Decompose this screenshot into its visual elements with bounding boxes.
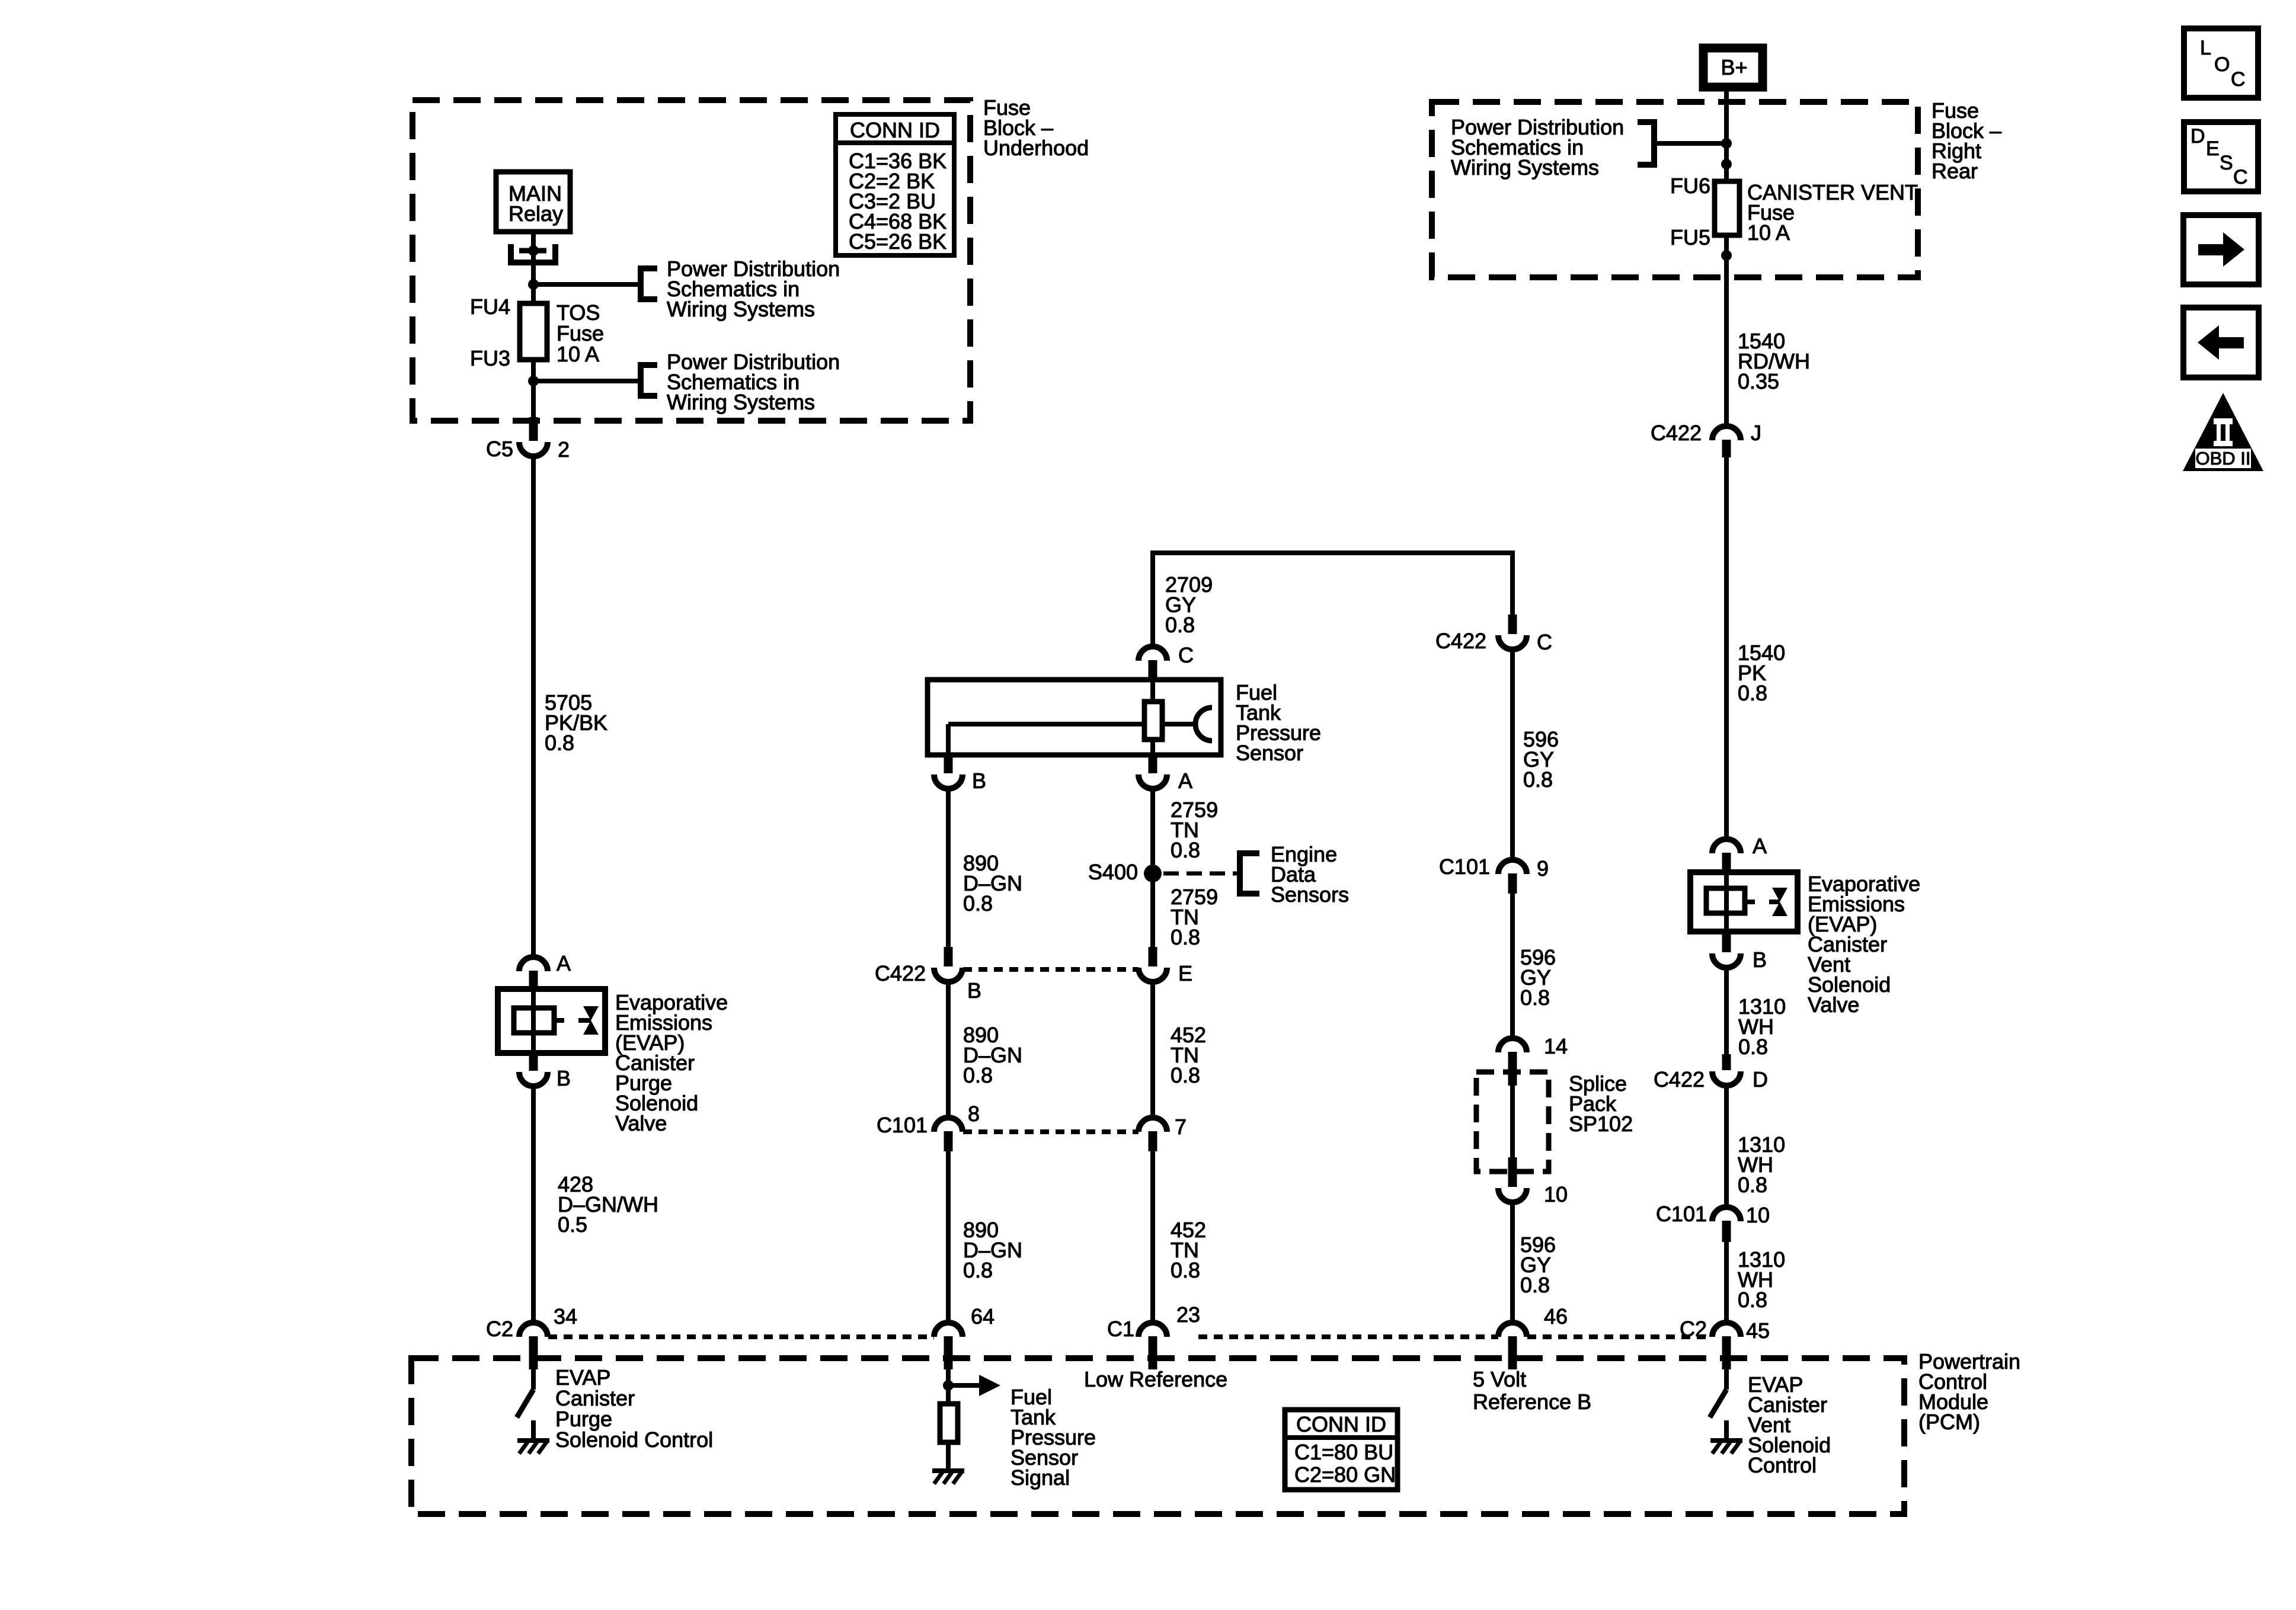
svg-text:CONN ID: CONN ID	[1296, 1412, 1386, 1436]
svg-text:S400: S400	[1088, 860, 1138, 884]
svg-text:C1=36 BKC2=2 BKC3=2 BUC4=68 BK: C1=36 BKC2=2 BKC3=2 BUC4=68 BKC5=26 BK	[849, 149, 946, 254]
svg-text:Low Reference: Low Reference	[1084, 1367, 1227, 1391]
svg-text:B+: B+	[1721, 55, 1747, 79]
svg-text:O: O	[2214, 53, 2230, 76]
svg-text:10: 10	[1544, 1182, 1568, 1206]
svg-text:FU4: FU4	[470, 295, 510, 319]
svg-text:7: 7	[1175, 1115, 1187, 1139]
svg-text:J: J	[1751, 421, 1761, 445]
svg-text:C101: C101	[1439, 854, 1490, 879]
svg-text:E: E	[1178, 961, 1192, 985]
svg-text:D: D	[2191, 125, 2205, 148]
svg-text:C: C	[2233, 166, 2248, 188]
svg-text:C5: C5	[486, 437, 513, 461]
svg-text:C2: C2	[1680, 1317, 1707, 1341]
svg-text:OBD II: OBD II	[2195, 448, 2250, 469]
svg-text:FU3: FU3	[470, 346, 510, 370]
svg-text:A: A	[557, 951, 571, 975]
svg-text:B: B	[967, 978, 981, 1003]
svg-text:C1: C1	[1107, 1317, 1134, 1341]
svg-text:B: B	[1753, 948, 1767, 972]
svg-text:FU6: FU6	[1670, 174, 1710, 198]
svg-text:8: 8	[968, 1102, 980, 1126]
svg-text:C: C	[1537, 630, 1552, 654]
svg-text:9: 9	[1537, 856, 1549, 881]
svg-text:45: 45	[1746, 1318, 1770, 1343]
svg-text:MAINRelay: MAINRelay	[509, 181, 563, 226]
svg-text:S: S	[2220, 152, 2233, 174]
svg-text:E: E	[2206, 137, 2220, 160]
svg-text:64: 64	[971, 1304, 994, 1329]
svg-text:C: C	[1178, 643, 1194, 667]
svg-text:C2: C2	[486, 1317, 513, 1341]
svg-text:A: A	[1753, 834, 1767, 858]
svg-text:CONN ID: CONN ID	[850, 118, 940, 142]
svg-text:2: 2	[558, 437, 570, 462]
svg-text:A: A	[1178, 769, 1192, 793]
svg-text:FU5: FU5	[1670, 225, 1710, 249]
svg-text:C422: C422	[1651, 421, 1702, 445]
svg-text:46: 46	[1544, 1304, 1568, 1329]
svg-text:10: 10	[1746, 1203, 1770, 1227]
svg-text:L: L	[2200, 37, 2211, 59]
svg-text:34: 34	[554, 1304, 577, 1329]
svg-text:B: B	[557, 1066, 571, 1090]
svg-text:D: D	[1753, 1067, 1768, 1092]
svg-text:C422: C422	[875, 961, 926, 985]
svg-text:23: 23	[1176, 1302, 1200, 1327]
svg-text:C101: C101	[877, 1113, 928, 1137]
svg-text:C: C	[2231, 68, 2246, 91]
svg-text:C422: C422	[1435, 629, 1486, 653]
svg-text:14: 14	[1544, 1034, 1568, 1058]
svg-text:B: B	[972, 769, 986, 793]
svg-text:C101: C101	[1656, 1202, 1707, 1226]
svg-text:C1=80 BUC2=80 GN: C1=80 BUC2=80 GN	[1294, 1440, 1396, 1487]
svg-text:C422: C422	[1654, 1067, 1705, 1092]
svg-text:TOSFuse10 A: TOSFuse10 A	[557, 300, 604, 366]
